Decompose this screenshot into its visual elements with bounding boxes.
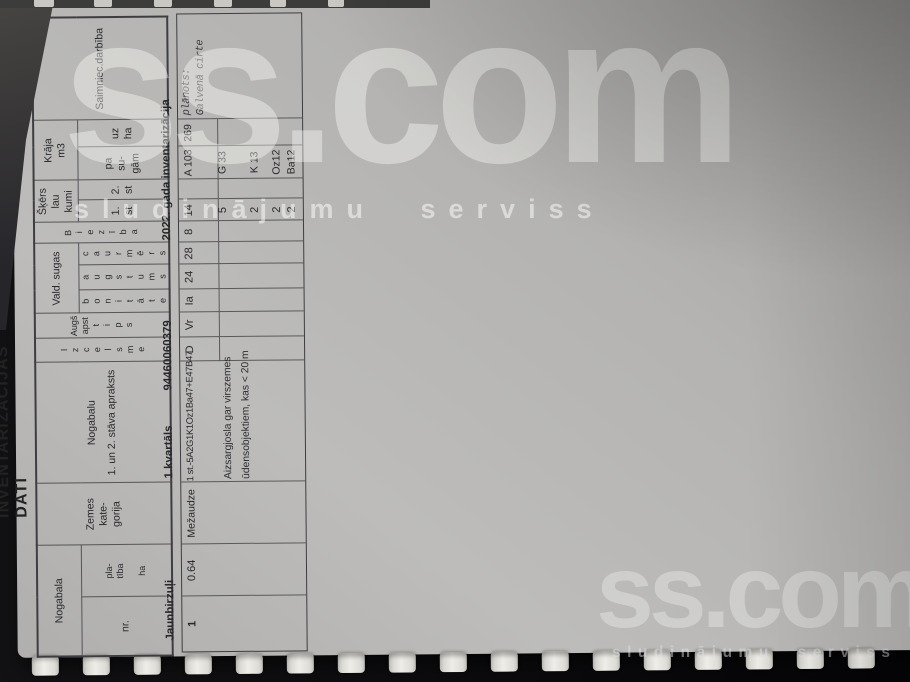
col-header-apraksts: Nogabalu 1. un 2. stāva apraksts: [35, 361, 171, 483]
col-header-augsanas-apstakli: Augš apst tips: [34, 312, 169, 338]
binding-tooth: [694, 649, 721, 669]
col-header-bieziba: B iezība: [34, 221, 169, 243]
cell-saimn-line1: plānots:: [180, 17, 193, 115]
document-photo: INVENTARIZĀCIJAS DATI 3 Nogabala Zemes k…: [0, 0, 910, 682]
cell-apraksts-formula: 1 st.-5A2G1K1Oz1Ba47+E47B47: [184, 361, 195, 481]
binding-tooth: [235, 653, 262, 673]
binding-tooth: [31, 655, 58, 675]
species-sk: 2: [270, 198, 282, 220]
species-volume: Oz12: [270, 145, 282, 178]
col-header-bonitate: bonitāte: [78, 289, 169, 313]
grid-line: [180, 335, 304, 337]
apraksts-note-line1: Aizsargjosla gar virszemes: [222, 361, 234, 479]
cell-augstums: 24: [183, 264, 195, 289]
species-sk: 5: [216, 199, 228, 221]
col-header-saimnieciba: Saimniec.darbība: [32, 16, 167, 120]
grid-line: [179, 219, 303, 221]
col-header-zemes-kategorija: Zemes kate- gorija: [36, 482, 171, 545]
cell-tips: Vr: [183, 312, 195, 337]
grid-line: [181, 480, 305, 482]
species-volume: Ba12: [285, 145, 297, 178]
col-header-nogabala: Nogabala: [36, 545, 81, 656]
col-header-skerslaukumi: Šķērs lau kumi: [33, 180, 77, 222]
bonitate-vertical-label: bonitāte: [80, 296, 168, 306]
col-header-augstums: augstums: [78, 264, 169, 290]
binding-tooth: [286, 653, 313, 673]
grid-line: [178, 144, 302, 146]
cell-platiba: 0.64: [185, 544, 197, 596]
binding-tooth: [592, 650, 619, 670]
apraksts-note-line2: ūdensobjektiem, kas < 20 m: [240, 360, 252, 478]
section-kvartals: 1.kvartāls: [162, 425, 174, 478]
col-header-1st: 1. st: [77, 199, 168, 222]
page-title: INVENTARIZĀCIJAS DATI: [0, 345, 31, 518]
species-sk: 2: [285, 198, 297, 220]
col-header-pa-sugam: pa su- gām: [77, 146, 168, 180]
species-volume: G 33: [216, 146, 228, 179]
binding-tooth-top: [34, 0, 54, 7]
binding-tooth: [133, 654, 160, 674]
binding-tooth: [745, 649, 772, 669]
species-volume: K 13: [248, 145, 260, 178]
bieziba-initial: B: [62, 222, 73, 242]
augs-apst-label-1: Augš: [69, 313, 80, 337]
cell-kraja-uz-ha: 269: [182, 119, 194, 146]
section-inventarizacija: 2022. gada inventarizācija: [159, 99, 172, 240]
binding-tooth: [388, 652, 415, 672]
bieziba-vertical-label: iezība: [74, 227, 140, 237]
grid-line: [182, 594, 306, 596]
augs-apst-label-2: apst: [79, 313, 90, 337]
cell-bonitate: Ia: [183, 289, 195, 312]
section-jaunbirzuli: Jaunbirzuļi: [164, 579, 177, 640]
platiba-label: pla- tība: [104, 545, 125, 596]
cell-saimn-line2: Galvenā cirte: [194, 17, 207, 115]
col-header-uz-ha: uz ha: [77, 119, 168, 147]
binding-tooth-top: [94, 0, 112, 7]
grid-line: [178, 177, 302, 179]
cell-kraja-pa-sugam: A 103: [182, 146, 194, 179]
grid-line: [179, 262, 303, 264]
cell-skerslaukums: 14: [182, 199, 194, 221]
col-header-2st: 2. st: [77, 179, 168, 200]
platiba-unit-label: ha: [137, 545, 148, 596]
grid-line: [181, 542, 305, 544]
section-kods: 94460060379: [161, 320, 174, 390]
binding-tooth: [184, 654, 211, 674]
augstums-vertical-label: augstums: [80, 272, 168, 282]
grid-line: [178, 117, 302, 119]
binding-tooth-top: [328, 0, 344, 7]
cell-bieziba: 8: [183, 221, 195, 242]
grid-line: [179, 310, 303, 312]
tips-vertical-label: tips: [91, 320, 135, 329]
inventory-table-header: Nogabala Zemes kate- gorija Nogabalu 1. …: [31, 15, 173, 657]
binding-tooth: [490, 651, 517, 671]
binding-tooth-top: [214, 0, 232, 7]
grid-line: [178, 197, 302, 199]
binding-tooth-top: [154, 0, 172, 7]
cell-izcelsme: D: [184, 337, 196, 361]
grid-line: [179, 287, 303, 289]
cell-kategorija: Mežaudze: [185, 482, 198, 544]
col-header-caurmers: caurmērs: [78, 242, 169, 265]
species-sk: 2: [248, 198, 260, 220]
binding-tooth-top: [270, 0, 286, 7]
binding-tooth: [796, 648, 823, 668]
izcelsme-vertical-label: Izcelsme: [58, 345, 146, 355]
binding-tooth: [439, 652, 466, 672]
cell-caurmers: 28: [183, 242, 195, 264]
binding-tooth: [82, 655, 109, 675]
col-header-platiba: pla- tība ha: [80, 544, 171, 597]
col-header-nr: nr.: [81, 596, 172, 656]
grid-line: [179, 240, 303, 242]
binding-tooth: [643, 650, 670, 670]
col-header-izcelsme: Izcelsme: [35, 337, 170, 362]
caurmers-vertical-label: caurmērs: [79, 249, 167, 259]
cell-nr: 1: [186, 596, 198, 651]
col-header-kraja: Krāja m3: [33, 120, 78, 180]
binding-tooth: [847, 648, 874, 668]
binding-tooth: [337, 652, 364, 672]
binding-tooth: [541, 651, 568, 671]
inventory-data-grid: 1 0.64 Mežaudze 1 st.-5A2G1K1Oz1Ba47+E47…: [176, 12, 308, 652]
col-header-vald-sugas: Vald. sugas: [34, 243, 79, 313]
